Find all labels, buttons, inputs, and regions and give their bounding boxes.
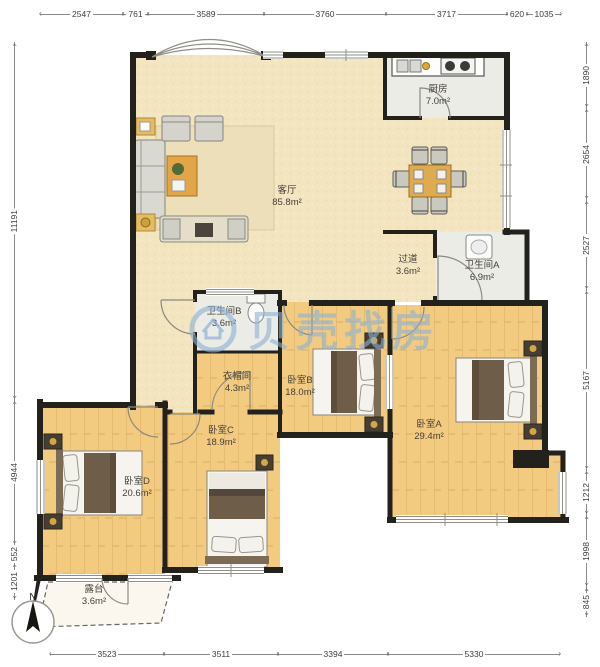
headboard: [205, 556, 269, 564]
dim-bottom-2: 3511: [164, 648, 278, 660]
headboard: [56, 449, 63, 517]
dim-right-2: 2654: [580, 108, 592, 200]
dim-left-2: 4944: [8, 400, 20, 545]
dim-top-5: 3717: [386, 8, 507, 20]
room-label-bedroom-a: 卧室A29.4m²: [414, 419, 444, 443]
room-label-bathroom-a: 卫生间A6.9m²: [465, 260, 500, 284]
dim-top-4: 3760: [264, 8, 386, 20]
dim-bottom-4: 5330: [388, 648, 560, 660]
pillow: [508, 361, 525, 387]
pillow: [359, 353, 376, 380]
armchair: [195, 116, 223, 141]
room-label-living-room: 客厅85.8m²: [272, 185, 302, 209]
burner: [460, 61, 470, 71]
compass-north-label: N: [29, 592, 36, 603]
room-label-bedroom-d: 卧室D20.6m²: [122, 476, 152, 500]
room-label-kitchen: 厨房7.0m²: [426, 84, 450, 108]
dim-top-3: 3589: [148, 8, 264, 20]
dim-right-6: 1998: [580, 515, 592, 587]
dim-bottom-3: 3394: [278, 648, 388, 660]
pillow: [508, 391, 525, 417]
dim-right-1: 1890: [580, 42, 592, 108]
room-label-bathroom-b: 卫生间B3.6m²: [207, 306, 242, 330]
headboard: [374, 347, 381, 417]
lamp: [530, 345, 537, 352]
room-label-bedroom-b: 卧室B18.0m²: [285, 375, 315, 399]
room-label-hallway: 过道3.6m²: [396, 254, 420, 278]
dim-left-3: 552: [8, 545, 20, 563]
lamp: [50, 518, 57, 525]
pillow: [63, 454, 80, 481]
dim-top-1: 2547: [40, 8, 123, 20]
armchair: [162, 116, 190, 141]
lamp: [371, 421, 378, 428]
pillow: [359, 384, 376, 411]
dim-right-4: 5167: [580, 290, 592, 470]
room-label-closet: 衣帽间4.3m²: [223, 371, 252, 395]
dim-right-7: 845: [580, 587, 592, 617]
dim-bottom-1: 3523: [50, 648, 164, 660]
headboard: [530, 356, 537, 424]
living-room-furniture: [135, 116, 274, 242]
kitchen-fixtures: [392, 56, 484, 76]
lamp: [261, 459, 268, 466]
pillow: [239, 536, 264, 553]
dim-right-3: 2527: [580, 200, 592, 290]
lamp: [530, 428, 537, 435]
sink: [410, 60, 421, 72]
bedroom-c-bed: [205, 455, 273, 567]
dim-left-1: 11191: [8, 42, 20, 400]
dim-top-7: 1035: [527, 8, 561, 20]
burner: [445, 61, 455, 71]
pillow: [63, 484, 80, 511]
floors: [38, 55, 565, 627]
dim-right-5: 1212: [580, 470, 592, 515]
sink: [397, 60, 408, 72]
floor-plan-drawing: N: [0, 0, 600, 667]
toilet-bowl: [248, 303, 264, 323]
lamp: [371, 337, 378, 344]
dim-top-2: 761: [123, 8, 148, 20]
floor-plan: N 贝壳找房 厨房7.0m² 客厅85.8m² 过道3.6m² 卫生间A6.9m…: [0, 0, 600, 667]
sofa: [135, 140, 165, 218]
plant: [172, 163, 184, 175]
room-label-terrace: 露台3.6m²: [82, 584, 106, 608]
lamp: [50, 438, 57, 445]
dim-left-4: 1201: [8, 563, 20, 600]
room-label-bedroom-c: 卧室C18.9m²: [206, 425, 236, 449]
pillow: [211, 536, 236, 553]
dim-top-6: 620: [507, 8, 527, 20]
